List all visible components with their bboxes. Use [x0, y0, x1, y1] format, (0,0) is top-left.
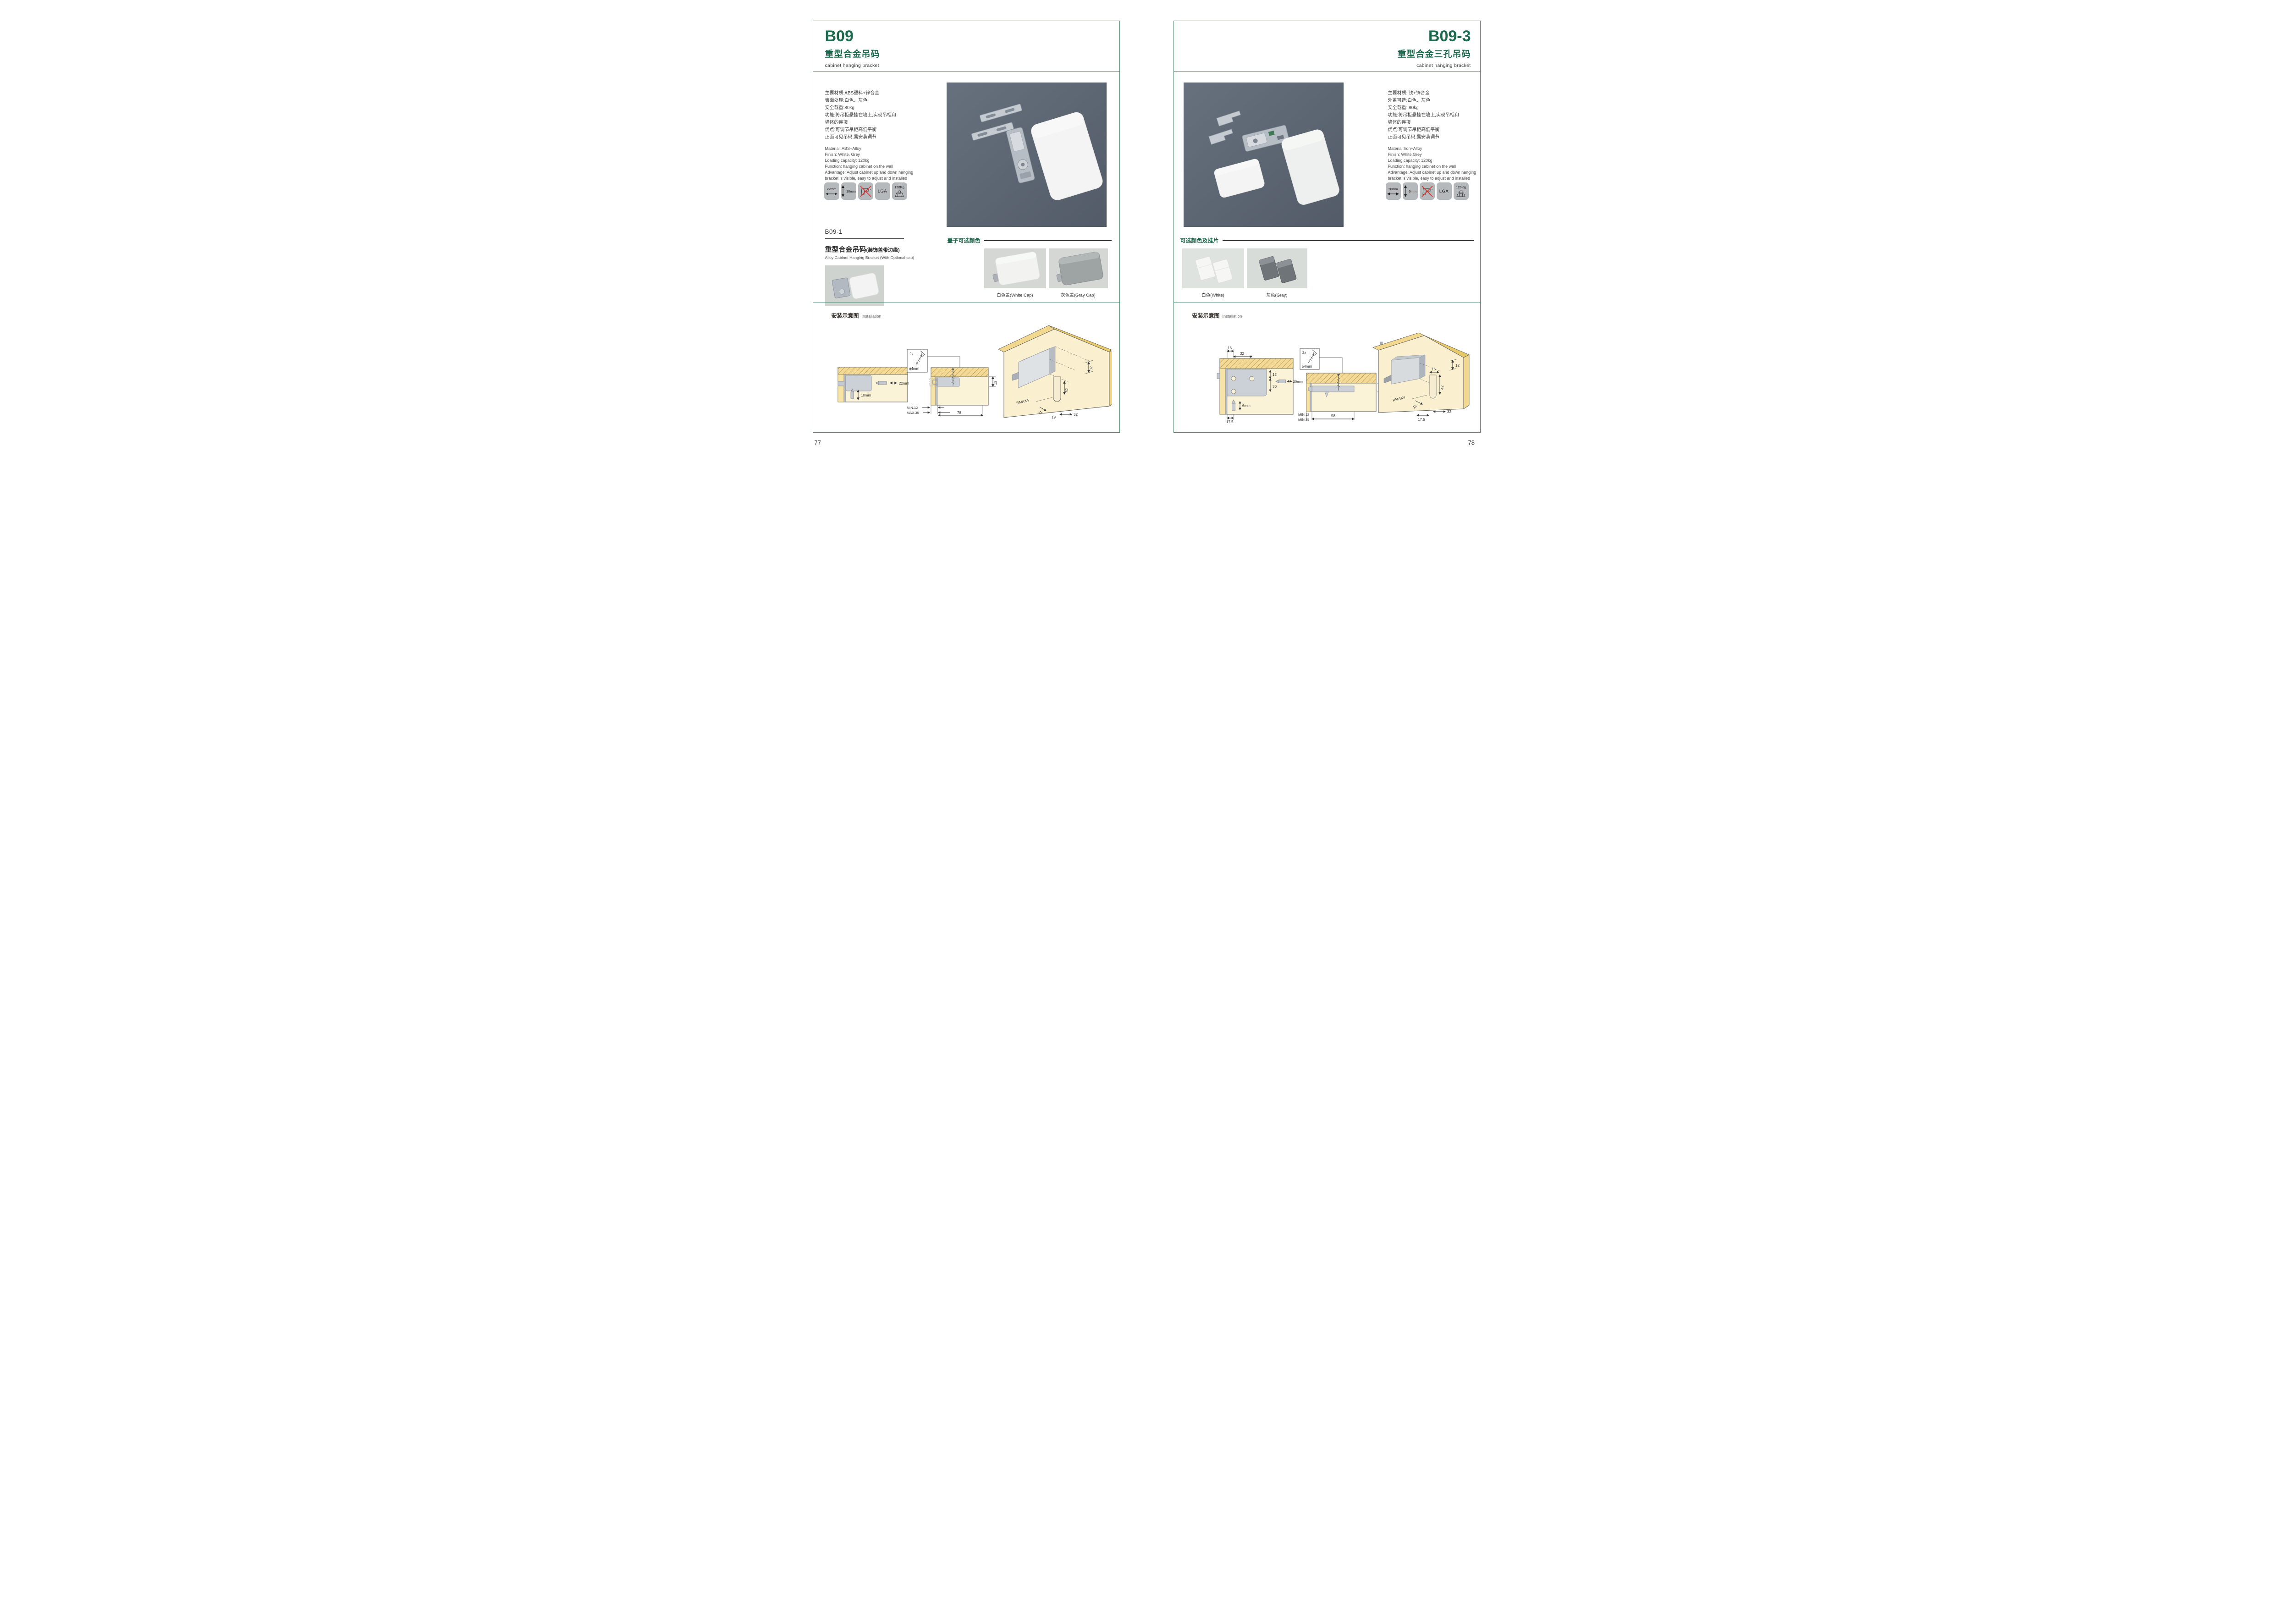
page-right-header: B09-3 重型合金三孔吊码 cabinet hanging bracket: [1174, 21, 1480, 72]
dim-17-5: 17.5: [1418, 418, 1425, 422]
lga-cert-icon: LGA: [875, 182, 890, 200]
divider: [825, 238, 904, 239]
page-right: B09-3 重型合金三孔吊码 cabinet hanging bracket 主…: [1174, 21, 1481, 433]
dim-min12: MIN.12: [1298, 413, 1309, 417]
no-drill-icon: [858, 182, 873, 200]
product-photo: [947, 83, 1107, 227]
product-title-cn: 重型合金三孔吊码: [1186, 47, 1471, 60]
cap-color-tiles: [984, 248, 1108, 288]
specs-english: Material:Iron+Alloy Finish: White,Grey L…: [1388, 146, 1477, 182]
gray-plates-photo: [1247, 248, 1307, 288]
section-divider: [1174, 303, 1480, 303]
depth-arrow-icon: 6mm: [1403, 182, 1418, 200]
white-caption: 白色(White): [1182, 292, 1244, 298]
product-photo: [1184, 83, 1344, 227]
catalog-spread: B09 重型合金吊码 cabinet hanging bracket 主要材质:…: [793, 0, 1500, 461]
screw-qty: 2x: [1302, 351, 1306, 355]
page-left-header: B09 重型合金吊码 cabinet hanging bracket: [813, 21, 1119, 72]
installation-heading: 安装示意图Installation: [832, 312, 882, 320]
product-code: B09-3: [1186, 28, 1471, 44]
color-plate-captions: 白色(White) 灰色(Gray): [1182, 292, 1307, 298]
dim-30: 30: [1273, 385, 1277, 389]
product-title-cn: 重型合金吊码: [825, 47, 1110, 60]
load-weight-icon: 120Kg: [892, 182, 907, 200]
page-number-right: 78: [1468, 439, 1475, 446]
feature-icon-row: 20mm 6mm LGA 120Kg: [1386, 182, 1469, 200]
install-diagram-section: 2x ϕ4mm 13: [906, 347, 1002, 417]
depth-arrow-icon: 10mm: [841, 182, 856, 200]
product-photo-image: [1184, 83, 1344, 227]
installation-heading: 安装示意图Installation: [1192, 312, 1242, 320]
dim-17-5: 17.5: [1226, 420, 1234, 424]
heading-rule: [1223, 240, 1474, 241]
section-divider: [813, 303, 1119, 303]
dim-12-top: 12: [1455, 363, 1460, 368]
lga-cert-icon: LGA: [1437, 182, 1452, 200]
width-arrow-icon: 22mm: [824, 182, 839, 200]
sub-product-code: B09-1: [825, 228, 953, 235]
dim-32-bottom: 32: [1074, 413, 1078, 417]
heading-rule: [984, 240, 1112, 241]
dim-58: 58: [1331, 414, 1335, 418]
sub-product-title-cn: 重型合金吊码(装饰盖带边缘): [825, 244, 953, 254]
color-plate-tiles: [1182, 248, 1307, 288]
dim-min35: MIN.35: [1298, 418, 1309, 422]
sub-product-title-en: Alloy Cabinet Hanging Bracket (With Opti…: [825, 255, 953, 260]
page-left: B09 重型合金吊码 cabinet hanging bracket 主要材质:…: [813, 21, 1120, 433]
gray-cap-photo: [1049, 248, 1108, 288]
page-number-left: 77: [815, 439, 821, 446]
install-diagram-plate: 16 32 12 30: [1216, 346, 1306, 424]
dim-78: 78: [957, 411, 961, 415]
drill-slot: [1430, 375, 1436, 398]
drill-slot: [1053, 377, 1061, 402]
product-title-en: cabinet hanging bracket: [1186, 63, 1471, 68]
gray-caption: 灰色(Gray): [1247, 292, 1307, 298]
gray-cap-caption: 灰色盖(Gray Cap): [1049, 292, 1108, 298]
install-diagram-perspective: 32 32 RMAX4 11 19 32: [995, 323, 1112, 421]
dim-32-top: 32: [1089, 366, 1093, 370]
white-cap-caption: 白色盖(White Cap): [984, 292, 1046, 298]
dim-32-inner: 32: [1065, 388, 1069, 392]
dim-42: 42: [1440, 385, 1444, 390]
v-arrow-icon: [841, 185, 845, 197]
no-drill-icon: [1420, 182, 1435, 200]
white-plates-photo: [1182, 248, 1244, 288]
install-diagram-perspective: 12 16 42 RMAX4 12 17.5 32: [1371, 331, 1474, 423]
sub-product-photo: [825, 265, 884, 306]
dim-min12: MIN.12: [907, 406, 918, 410]
color-plate-heading: 可选颜色及挂片: [1180, 237, 1474, 244]
dim-32: 32: [1447, 410, 1451, 414]
feature-icon-row: 22mm 10mm LGA 120Kg: [824, 182, 907, 200]
sub-product-section: B09-1 重型合金吊码(装饰盖带边缘) Alloy Cabinet Hangi…: [825, 228, 953, 306]
specs-chinese: 主要材质:ABS塑料+锌合金 表面处理:白色、灰色 安全载重:80kg 功能:将…: [825, 90, 897, 141]
width-arrow-icon: 20mm: [1386, 182, 1401, 200]
white-cap-photo: [984, 248, 1046, 288]
specs-english: Material: ABS+Alloy Finish: White, Grey …: [825, 146, 914, 182]
screw-dia: ϕ4mm: [1302, 364, 1312, 369]
dim-19: 19: [1052, 415, 1056, 419]
specs-chinese: 主要材质: 铁+锌合金 外盖可选:白色、灰色 安全载重: 80kg 功能:将吊柜…: [1388, 90, 1460, 141]
dim-16: 16: [1432, 367, 1436, 371]
dim-10mm: 10mm: [861, 393, 871, 397]
cap-color-heading: 盖子可选颜色: [948, 237, 1112, 244]
screw-dia: ϕ4mm: [909, 367, 920, 371]
install-diagram-side: 22mm 10mm: [835, 361, 913, 405]
screw-qty: 2x: [909, 352, 913, 356]
load-weight-icon: 120Kg: [1454, 182, 1469, 200]
product-code: B09: [825, 28, 1110, 44]
h-arrow-icon: [826, 192, 837, 196]
product-title-en: cabinet hanging bracket: [825, 63, 1110, 68]
cap-color-captions: 白色盖(White Cap) 灰色盖(Gray Cap): [984, 292, 1108, 298]
dim-max35: MAX.35: [907, 411, 919, 415]
dim-6mm: 6mm: [1242, 404, 1251, 408]
dim-12: 12: [1273, 373, 1277, 377]
product-photo-image: [947, 83, 1107, 227]
dim-16: 16: [1228, 346, 1232, 350]
dim-32: 32: [1240, 352, 1244, 356]
